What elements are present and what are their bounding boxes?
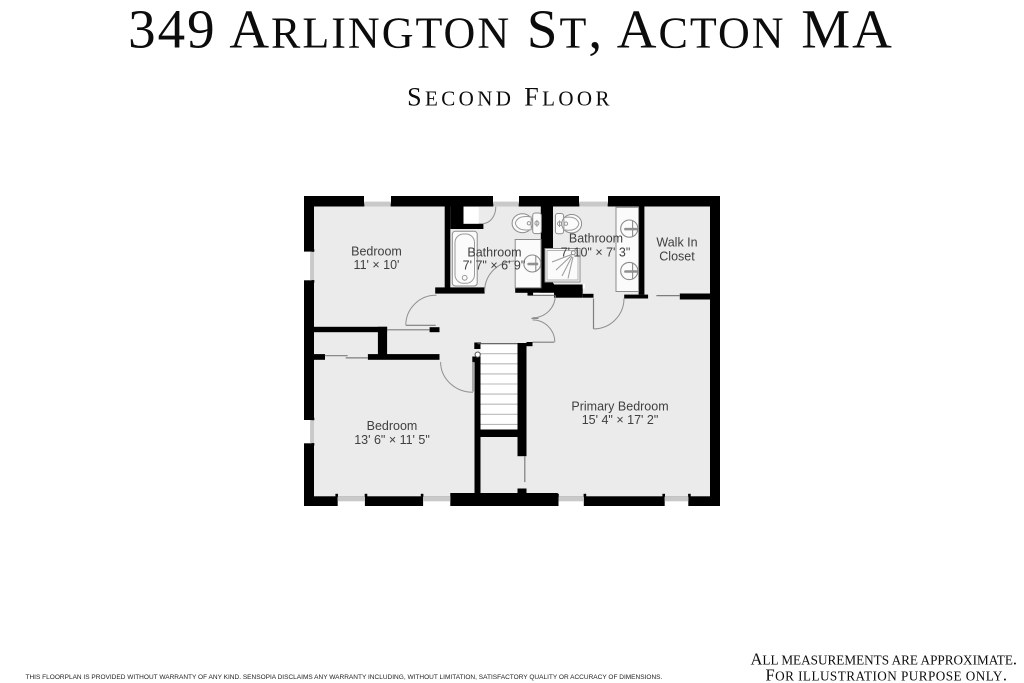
svg-text:ALL MEASUREMENTS ARE APPROXIMA: ALL MEASUREMENTS ARE APPROXIMATE. — [750, 650, 1017, 669]
svg-text:FOR ILLUSTRATION PURPOSE ONLY.: FOR ILLUSTRATION PURPOSE ONLY. — [765, 666, 1007, 683]
svg-text:Bathroom: Bathroom — [467, 245, 521, 259]
svg-text:11' × 10': 11' × 10' — [354, 258, 400, 272]
svg-text:Bedroom: Bedroom — [351, 244, 402, 258]
svg-text:Walk In: Walk In — [656, 236, 697, 250]
svg-text:15' 4" × 17' 2": 15' 4" × 17' 2" — [582, 413, 659, 427]
svg-text:Bathroom: Bathroom — [569, 232, 623, 246]
svg-text:7' 10" × 7' 3": 7' 10" × 7' 3" — [561, 245, 631, 259]
svg-text:THIS FLOORPLAN IS PROVIDED WIT: THIS FLOORPLAN IS PROVIDED WITHOUT WARRA… — [26, 674, 663, 681]
svg-text:Primary Bedroom: Primary Bedroom — [571, 399, 668, 413]
svg-text:13' 6" × 11' 5": 13' 6" × 11' 5" — [354, 433, 430, 447]
svg-text:Bedroom: Bedroom — [367, 419, 418, 433]
svg-text:7' 7" × 6' 9": 7' 7" × 6' 9" — [463, 259, 526, 273]
svg-text:349 ARLINGTON ST, ACTON MA: 349 ARLINGTON ST, ACTON MA — [128, 0, 894, 60]
svg-text:Closet: Closet — [659, 250, 695, 264]
svg-text:SECOND FLOOR: SECOND FLOOR — [407, 83, 613, 112]
